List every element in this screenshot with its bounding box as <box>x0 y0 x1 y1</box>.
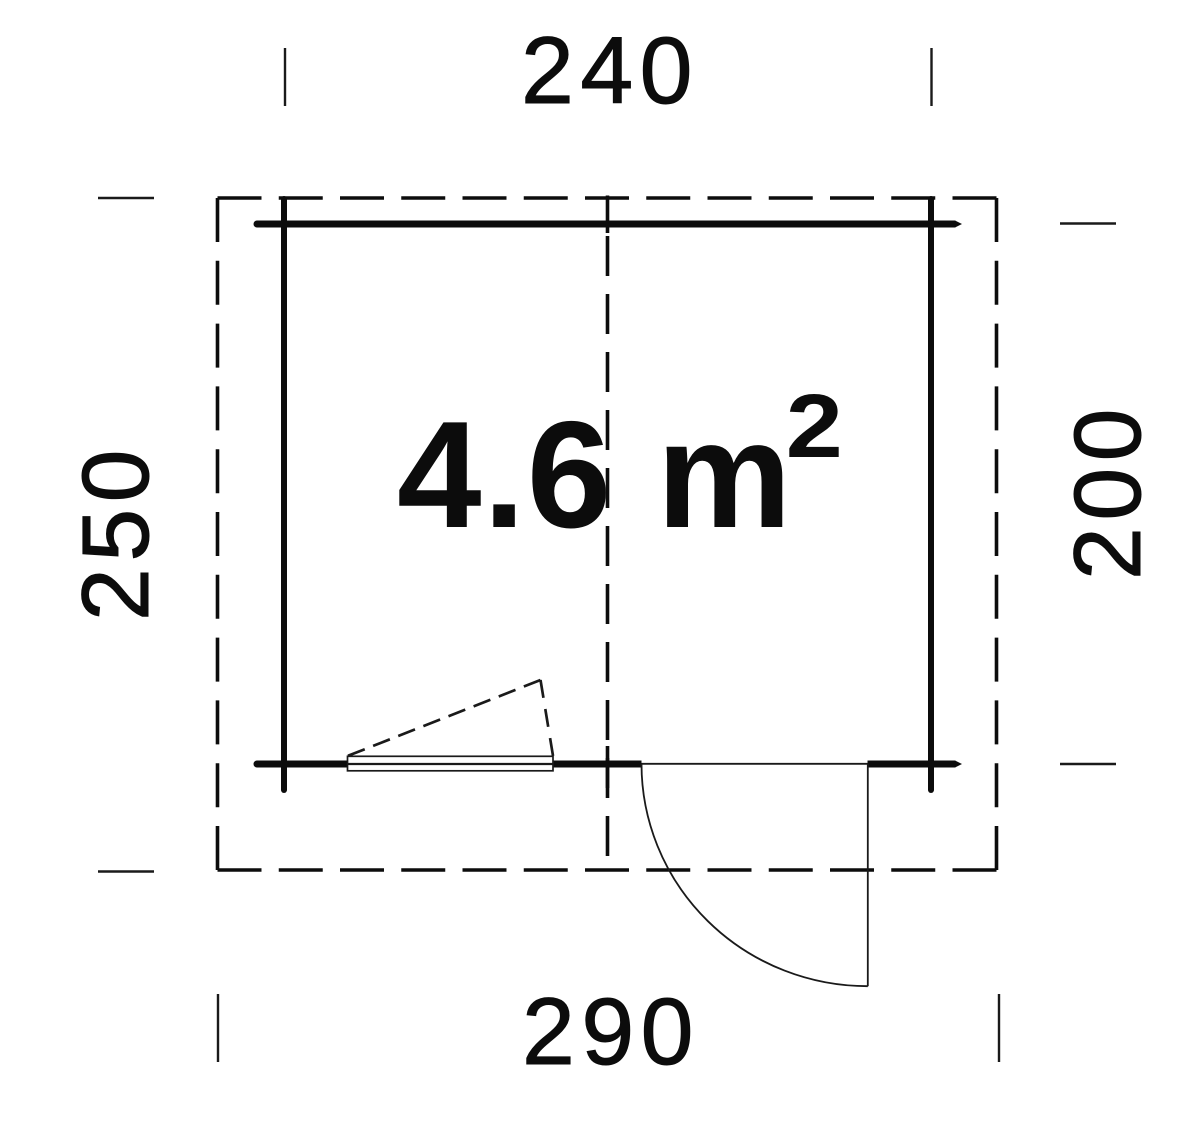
svg-text:200: 200 <box>1055 402 1161 580</box>
svg-text:2: 2 <box>786 377 843 477</box>
svg-text:4.6 m: 4.6 m <box>397 390 793 560</box>
svg-text:250: 250 <box>63 443 169 621</box>
svg-text:290: 290 <box>522 979 700 1085</box>
svg-text:240: 240 <box>521 18 699 124</box>
